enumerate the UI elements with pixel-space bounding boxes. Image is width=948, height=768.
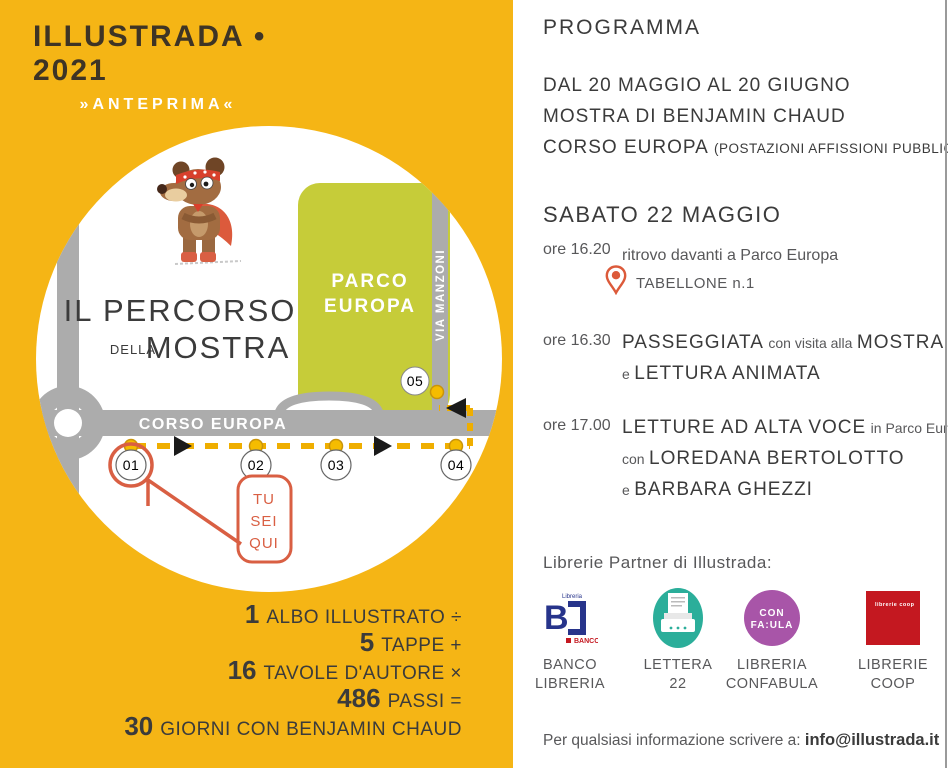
illustrada-logo: ILLUSTRADA • 2021 »ANTEPRIMA« [33, 20, 283, 114]
partner-label: LIBRERIA CONFABULA [717, 656, 827, 694]
event-title: LETTURA ANIMATA [634, 363, 820, 384]
roundabout-center [54, 409, 82, 437]
logo-title-line: ILLUSTRADA • 2021 [33, 20, 283, 88]
dates-location: CORSO EUROPA [543, 137, 708, 158]
partner-label: LIBRERIE COOP [838, 656, 948, 694]
contact-prefix: Per qualsiasi informazione scrivere a: [543, 732, 805, 749]
stop-label-02: 02 [248, 457, 265, 473]
event-time: ore 16.30 [543, 328, 622, 390]
confabula-text-line1: CON [759, 608, 784, 619]
banco-logo-icon: Libreria B BANCO [542, 589, 598, 647]
map-title-line1: IL PERCORSO [64, 293, 297, 328]
coop-logo: librerie coop [838, 584, 948, 652]
banco-libreria-logo: Libreria B BANCO [515, 584, 625, 652]
map-title-line2: MOSTRA [146, 330, 291, 365]
event-speaker: LOREDANA BERTOLOTTO [649, 448, 905, 469]
you-are-here-line2: SEI [250, 513, 277, 530]
equation-number: 1 [245, 599, 259, 630]
equation-line: 1 ALBO ILLUSTRATO ÷ [124, 599, 462, 627]
stop-label-01: 01 [123, 457, 140, 473]
contact-line: Per qualsiasi informazione scrivere a: i… [543, 731, 939, 750]
via-manzoni-label: VIA MANZONI [435, 249, 447, 341]
partners-heading: Librerie Partner di Illustrada: [543, 553, 772, 573]
logo-separator-dot: • [254, 20, 267, 53]
event-connector: e [622, 482, 630, 498]
corso-europa-label: CORSO EUROPA [139, 416, 287, 433]
equation-number: 5 [360, 627, 374, 658]
left-panel: ILLUSTRADA • 2021 »ANTEPRIMA« VIA MANZON… [0, 0, 513, 768]
event-description: LETTURE AD ALTA VOCE in Parco Europa con… [622, 413, 948, 506]
event-connector: con visita alla [768, 335, 852, 351]
event-title: LETTURE AD ALTA VOCE [622, 417, 866, 438]
banco-logo-letter: B [544, 599, 569, 637]
logo-title: ILLUSTRADA [33, 20, 244, 53]
equation-text: GIORNI CON BENJAMIN CHAUD [160, 719, 462, 741]
equation-text: TAPPE + [381, 635, 462, 657]
stop-label-03: 03 [328, 457, 345, 473]
route-map: VIA MANZONI CORSO EUROPA PARCO EUROPA [33, 125, 505, 597]
equation-line: 30 GIORNI CON BENJAMIN CHAUD [124, 711, 462, 739]
map-pin-icon [605, 265, 627, 295]
flyer-page: ILLUSTRADA • 2021 »ANTEPRIMA« VIA MANZON… [0, 0, 948, 768]
logo-year: 2021 [33, 54, 108, 87]
logo-subtitle: »ANTEPRIMA« [33, 96, 283, 114]
dates-line1: DAL 20 MAGGIO AL 20 GIUGNO [543, 70, 948, 101]
meeting-point-label: TABELLONE n.1 [636, 275, 755, 295]
program-heading: PROGRAMMA [543, 16, 701, 40]
equation-line: 5 TAPPE + [124, 627, 462, 655]
typewriter-icon [651, 586, 705, 650]
equation-number: 486 [337, 683, 380, 714]
meeting-point: TABELLONE n.1 [605, 265, 755, 295]
event-connector: in Parco Europa [871, 420, 948, 436]
confabula-circle-icon: CON FA:ULA [743, 589, 801, 647]
stop-dot-5 [431, 386, 444, 399]
park-label-line2: EUROPA [324, 296, 416, 317]
exhibition-numbers: 1 ALBO ILLUSTRATO ÷ 5 TAPPE + 16 TAVOLE … [124, 599, 462, 739]
you-are-here-line1: TU [253, 491, 275, 508]
dates-location-note: (POSTAZIONI AFFISSIONI PUBBLICHE) [714, 141, 948, 156]
event-speaker: BARBARA GHEZZI [634, 479, 813, 500]
equation-text: TAVOLE D'AUTORE × [264, 663, 462, 685]
coop-square-icon: librerie coop [866, 591, 920, 645]
event-connector: e [622, 366, 630, 382]
event-connector: con [622, 451, 645, 467]
event-title: PASSEGGIATA [622, 332, 764, 353]
event-row-1630: ore 16.30 PASSEGGIATA con visita alla MO… [543, 328, 944, 390]
exhibition-dates-block: DAL 20 MAGGIO AL 20 GIUGNO MOSTRA DI BEN… [543, 70, 948, 164]
equation-line: 486 PASSI = [124, 683, 462, 711]
stop-label-05: 05 [407, 373, 424, 389]
you-are-here-line3: QUI [249, 535, 279, 552]
side-road [57, 180, 79, 530]
dates-line3: CORSO EUROPA (POSTAZIONI AFFISSIONI PUBB… [543, 132, 948, 164]
equation-text: PASSI = [388, 691, 462, 713]
photo-edge-line [945, 0, 947, 768]
confabula-logo: CON FA:ULA [717, 584, 827, 652]
partner-librerie-coop: librerie coop LIBRERIE COOP [838, 584, 948, 694]
coop-logo-text: librerie coop [875, 602, 915, 608]
day-heading: SABATO 22 MAGGIO [543, 202, 781, 228]
partner-label: BANCO LIBRERIA [515, 656, 625, 694]
banco-logo-word: BANCO [574, 638, 598, 645]
stop-label-04: 04 [448, 457, 465, 473]
partner-libreria-confabula: CON FA:ULA LIBRERIA CONFABULA [717, 584, 827, 694]
equation-text: ALBO ILLUSTRATO ÷ [266, 607, 462, 629]
event-time: ore 17.00 [543, 413, 622, 506]
dates-line2: MOSTRA DI BENJAMIN CHAUD [543, 101, 948, 132]
equation-number: 30 [124, 711, 153, 742]
equation-line: 16 TAVOLE D'AUTORE × [124, 655, 462, 683]
equation-number: 16 [228, 655, 257, 686]
confabula-text-line2: FA:ULA [751, 620, 794, 631]
event-row-1700: ore 17.00 LETTURE AD ALTA VOCE in Parco … [543, 413, 948, 506]
event-description: PASSEGGIATA con visita alla MOSTRA e LET… [622, 328, 944, 390]
park-label-line1: PARCO [331, 271, 408, 292]
event-title: MOSTRA [857, 332, 944, 353]
contact-email: info@illustrada.it [805, 731, 939, 749]
partner-banco-libreria: Libreria B BANCO BANCO LIBRERIA [515, 584, 625, 694]
program-panel: PROGRAMMA DAL 20 MAGGIO AL 20 GIUGNO MOS… [513, 0, 948, 768]
